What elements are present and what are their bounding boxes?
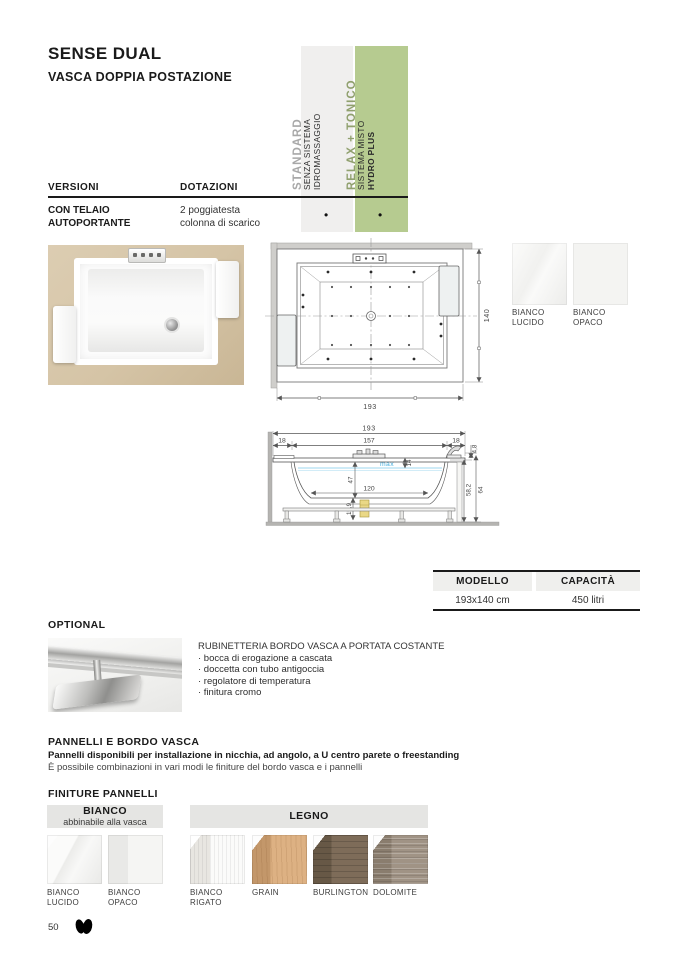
brand-petals-logo bbox=[72, 917, 96, 936]
optional-item: · doccetta con tubo antigoccia bbox=[198, 664, 332, 675]
column-standard-subtitle: SENZA SISTEMA IDROMASSAGGIO bbox=[302, 113, 322, 190]
dim-side-total-width: 193 bbox=[362, 426, 375, 433]
tub-photo-headrest-left bbox=[53, 306, 76, 363]
model-table-value-capacity: 450 litri bbox=[536, 591, 640, 609]
panel-swatch-label-2: BIANCO OPACO bbox=[108, 888, 140, 907]
table-header-rule bbox=[48, 196, 408, 198]
group-legno-header: LEGNO bbox=[190, 805, 428, 828]
dim-side-water-max: max bbox=[380, 461, 394, 468]
dim-side-bottom-width: 120 bbox=[363, 486, 375, 493]
optional-item: · finitura cromo bbox=[198, 687, 332, 698]
version-equipment: 2 poggiatesta colonna di scarico bbox=[180, 204, 260, 230]
model-table-value-model: 193x140 cm bbox=[433, 591, 532, 609]
version-name-line2: AUTOPORTANTE bbox=[48, 217, 130, 230]
relax-availability-dot: • bbox=[378, 208, 382, 222]
dim-side-total-height: 64 bbox=[478, 486, 485, 493]
optional-item: · regolatore di temperatura bbox=[198, 676, 332, 687]
model-table-header-capacita: CAPACITÀ bbox=[536, 572, 640, 591]
panel-swatch-label-3: BIANCO RIGATO bbox=[190, 888, 222, 907]
dim-side-water-gap: 14 bbox=[406, 459, 413, 466]
swatch-label-line: LUCIDO bbox=[47, 898, 79, 908]
dim-side-center-width: 157 bbox=[363, 438, 375, 445]
dim-side-rim-height: 4,8 bbox=[472, 444, 479, 453]
optional-title: RUBINETTERIA BORDO VASCA A PORTATA COSTA… bbox=[198, 641, 445, 652]
group-bianco-header: BIANCO abbinabile alla vasca bbox=[47, 805, 163, 828]
panel-swatch-burlington bbox=[313, 835, 368, 884]
column-standard-sub-line1: SENZA SISTEMA bbox=[302, 113, 312, 190]
tub-photo-faucet-deck bbox=[128, 248, 166, 263]
standard-availability-dot: • bbox=[324, 208, 328, 222]
group-legno-title: LEGNO bbox=[289, 811, 328, 822]
panel-finishes-heading: FINITURE PANNELLI bbox=[48, 788, 158, 800]
panel-swatch-bianco-rigato bbox=[190, 835, 245, 884]
version-equip-line2: colonna di scarico bbox=[180, 217, 260, 230]
tub-photo-headrest-right bbox=[216, 261, 239, 318]
panel-swatch-bianco-lucido bbox=[47, 835, 102, 884]
swatch-label-line: BIANCO bbox=[108, 888, 140, 898]
panel-swatch-grain bbox=[252, 835, 307, 884]
dim-side-right-edge: 18 bbox=[452, 438, 460, 445]
swatch-label-line: BURLINGTON bbox=[313, 888, 368, 898]
page-number: 50 bbox=[48, 922, 59, 933]
dim-top-height: 140 bbox=[482, 309, 491, 323]
column-standard-sub-line2: IDROMASSAGGIO bbox=[312, 113, 322, 190]
dim-top-width: 193 bbox=[363, 402, 377, 411]
versions-header: VERSIONI bbox=[48, 182, 99, 193]
version-equip-line1: 2 poggiatesta bbox=[180, 204, 260, 217]
model-table-bottom-rule bbox=[433, 609, 640, 611]
dim-side-panel-height: 58,2 bbox=[466, 483, 473, 496]
column-relax-subtitle: SISTEMA MISTO HYDRO PLUS bbox=[356, 120, 376, 190]
panel-swatch-label-4: GRAIN bbox=[252, 888, 279, 898]
swatch-label-line: DOLOMITE bbox=[373, 888, 417, 898]
panels-desc-bold: Pannelli disponibili per installazione i… bbox=[48, 750, 459, 761]
tub-photo-basin-inner bbox=[88, 269, 204, 352]
panel-swatch-bianco-opaco bbox=[108, 835, 163, 884]
column-relax-sub-line2: HYDRO PLUS bbox=[366, 120, 376, 190]
dim-side-inner-depth: 47 bbox=[348, 476, 355, 483]
optional-faucet-photo bbox=[48, 638, 182, 712]
swatch-label-line: RIGATO bbox=[190, 898, 222, 908]
swatch-bianco-lucido-label: BIANCO LUCIDO bbox=[512, 308, 544, 327]
optional-item: · bocca di erogazione a cascata bbox=[198, 653, 332, 664]
panel-swatch-label-1: BIANCO LUCIDO bbox=[47, 888, 79, 907]
swatch-bianco-opaco bbox=[573, 243, 628, 305]
page-title: SENSE DUAL bbox=[48, 44, 162, 64]
panels-desc-regular: È possibile combinazioni in vari modi le… bbox=[48, 762, 362, 773]
swatch-label-line: GRAIN bbox=[252, 888, 279, 898]
swatch-label-line: BIANCO bbox=[512, 308, 544, 318]
group-bianco-subtitle: abbinabile alla vasca bbox=[63, 817, 147, 827]
swatch-bianco-opaco-label: BIANCO OPACO bbox=[573, 308, 605, 327]
tub-photo-basin bbox=[74, 258, 218, 365]
technical-drawing-top-view: 140 193 bbox=[265, 238, 500, 415]
model-table-header-modello: MODELLO bbox=[433, 572, 532, 591]
swatch-label-line: OPACO bbox=[108, 898, 140, 908]
faucet-base-plate bbox=[52, 674, 141, 709]
version-name-line1: CON TELAIO bbox=[48, 204, 130, 217]
panels-heading: PANNELLI E BORDO VASCA bbox=[48, 736, 199, 748]
tub-photo bbox=[48, 245, 244, 385]
catalog-page: SENSE DUAL VASCA DOPPIA POSTAZIONE STAND… bbox=[0, 0, 678, 959]
swatch-label-line: BIANCO bbox=[190, 888, 222, 898]
page-subtitle: VASCA DOPPIA POSTAZIONE bbox=[48, 70, 232, 84]
dotazioni-header: DOTAZIONI bbox=[180, 182, 238, 193]
swatch-label-line: BIANCO bbox=[47, 888, 79, 898]
tub-photo-drain bbox=[166, 319, 178, 331]
panel-swatch-label-5: BURLINGTON bbox=[313, 888, 368, 898]
panel-swatch-label-6: DOLOMITE bbox=[373, 888, 417, 898]
swatch-label-line: BIANCO bbox=[573, 308, 605, 318]
column-relax-sub-line1: SISTEMA MISTO bbox=[356, 120, 366, 190]
optional-heading: OPTIONAL bbox=[48, 619, 105, 631]
panel-swatch-dolomite bbox=[373, 835, 428, 884]
optional-list: · bocca di erogazione a cascata · doccet… bbox=[198, 653, 332, 698]
swatch-label-line: LUCIDO bbox=[512, 318, 544, 328]
group-bianco-title: BIANCO bbox=[83, 806, 127, 817]
version-name: CON TELAIO AUTOPORTANTE bbox=[48, 204, 130, 230]
swatch-bianco-lucido bbox=[512, 243, 567, 305]
dim-side-left-edge: 18 bbox=[278, 438, 286, 445]
technical-drawing-side-view: 193 18 157 18 max 14 47 120 bbox=[265, 418, 500, 530]
swatch-label-line: OPACO bbox=[573, 318, 605, 328]
